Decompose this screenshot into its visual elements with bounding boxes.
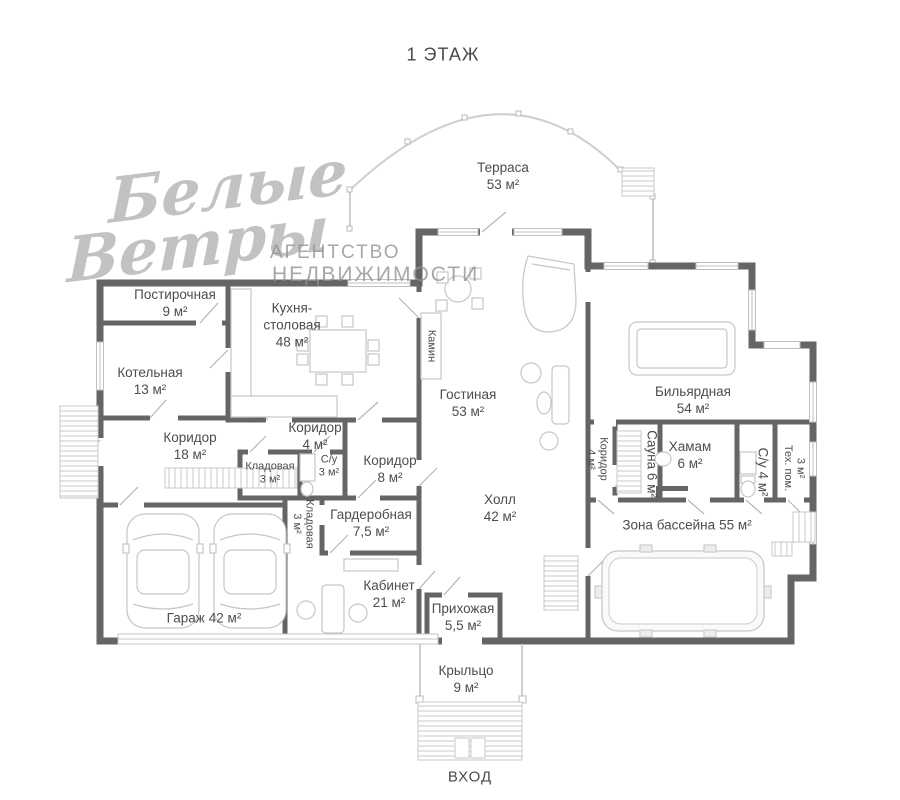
- floor-plan: Белые Ветры АГЕНТСТВО НЕДВИЖИМОСТИ 1 ЭТА…: [0, 0, 900, 800]
- room-label-kitchen: Кухня-столовая48 м²: [250, 301, 334, 352]
- room-label-fireplace: Камин: [425, 330, 438, 362]
- room-label-boiler: Котельная13 м²: [117, 365, 182, 399]
- sauna-bench: [617, 431, 641, 493]
- porch-steps: [418, 702, 522, 760]
- terrace-stairs: [622, 168, 654, 196]
- piano: [523, 256, 576, 332]
- room-label-hamam: Хамам6 м²: [669, 439, 712, 473]
- sofa: [552, 366, 569, 424]
- watermark-agency-line2: НЕДВИЖИМОСТИ: [272, 263, 479, 287]
- room-label-living: Гостиная53 м²: [440, 387, 497, 421]
- room-label-porch: Крыльцо9 м²: [438, 663, 493, 697]
- armchair: [521, 363, 541, 383]
- room-label-tech: Тех. пом.3 м²: [781, 445, 806, 491]
- room-label-wc-3: С/у3 м²: [319, 453, 339, 478]
- hall-stairs: [544, 556, 578, 610]
- room-label-pantry-lower: Кладовая3 м²: [290, 499, 315, 548]
- page-title: 1 ЭТАЖ: [407, 45, 480, 66]
- room-label-terrace: Терраса53 м²: [477, 160, 529, 194]
- room-label-sauna: Сауна 6 м²: [643, 430, 660, 498]
- room-label-wc-4: С/у 4 м²: [754, 447, 771, 496]
- desk: [322, 585, 344, 633]
- room-label-pool-zone: Зона бассейна55 м²: [622, 518, 751, 535]
- watermark-agency-line1: АГЕНТСТВО: [270, 242, 400, 264]
- room-label-laundry: Постирочная9 м²: [134, 287, 216, 321]
- room-label-corridor-4-right: Коридор4 м²: [584, 437, 609, 480]
- pool-ladder: [793, 512, 815, 542]
- entrance-porch: [416, 644, 526, 760]
- room-label-hall: Холл42 м²: [484, 492, 517, 526]
- room-label-corridor-8: Коридор8 м²: [363, 453, 416, 487]
- room-label-pantry-upper: Кладовая3 м²: [245, 460, 294, 485]
- room-label-garage: Гараж42 м²: [167, 611, 242, 628]
- room-label-wardrobe: Гардеробная7,5 м²: [330, 507, 412, 541]
- room-label-corridor-18: Коридор18 м²: [163, 430, 216, 464]
- room-label-cabinet: Кабинет21 м²: [363, 578, 414, 612]
- room-label-billiard: Бильярдная54 м²: [655, 384, 731, 418]
- room-label-hallway: Прихожая5,5 м²: [432, 601, 495, 635]
- entrance-label: ВХОД: [448, 769, 492, 786]
- side-porch-steps: [60, 406, 98, 498]
- room-label-corridor-4-left: Коридор4 м²: [288, 420, 341, 454]
